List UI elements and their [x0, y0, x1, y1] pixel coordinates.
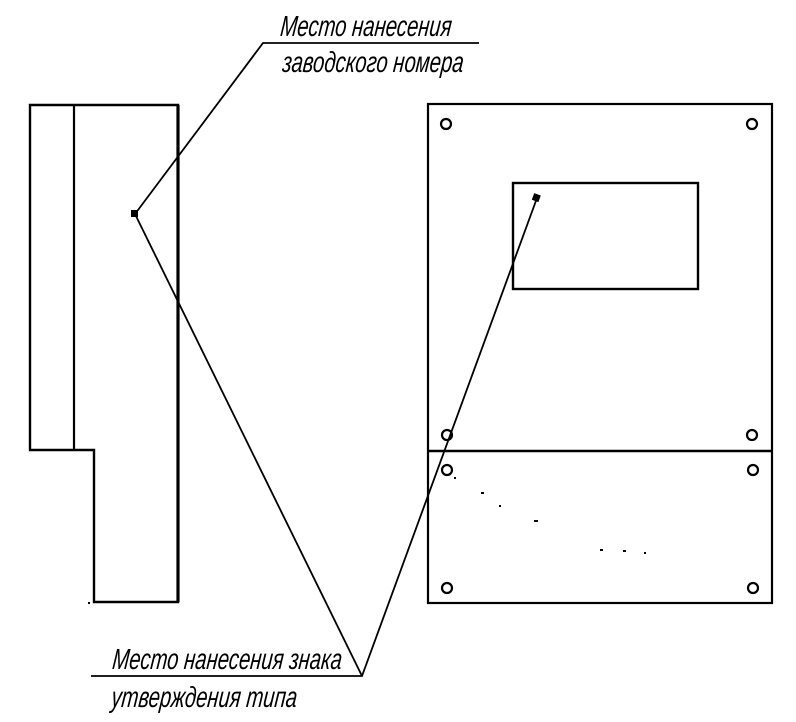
serial-number-label-line1: Место нанесения — [279, 13, 453, 42]
scan-speckle — [600, 549, 603, 551]
scan-speckle — [454, 477, 456, 479]
mounting-hole-icon — [442, 465, 452, 475]
scan-speckle — [644, 552, 646, 554]
mounting-holes — [441, 119, 758, 593]
scan-speckle — [534, 520, 538, 522]
drawing-shapes — [0, 0, 796, 722]
technical-drawing: Место нанесения заводского номера Место … — [0, 0, 796, 722]
mounting-hole-icon — [747, 119, 757, 129]
type-approval-label-line1: Место нанесения знака — [111, 646, 344, 675]
mounting-hole-icon — [747, 430, 757, 440]
side-view-marker-dot — [131, 210, 138, 217]
scan-speckle — [623, 550, 626, 552]
scan-speckle — [88, 602, 90, 604]
mounting-hole-icon — [441, 119, 451, 129]
nameplate-area — [513, 183, 698, 289]
mounting-hole-icon — [748, 465, 758, 475]
serial-number-label-line2: заводского номера — [281, 49, 465, 78]
type-approval-label-line2: утверждения типа — [110, 684, 299, 713]
mounting-hole-icon — [442, 583, 452, 593]
side-view-outline — [30, 105, 178, 602]
type-approval-leader-line-left — [135, 214, 362, 676]
type-approval-leader-line-right — [91, 198, 537, 676]
scan-speckle — [499, 505, 501, 507]
mounting-hole-icon — [748, 583, 758, 593]
scan-artifacts — [88, 477, 646, 604]
scan-speckle — [481, 492, 484, 494]
nameplate-marker-dot — [532, 193, 541, 202]
